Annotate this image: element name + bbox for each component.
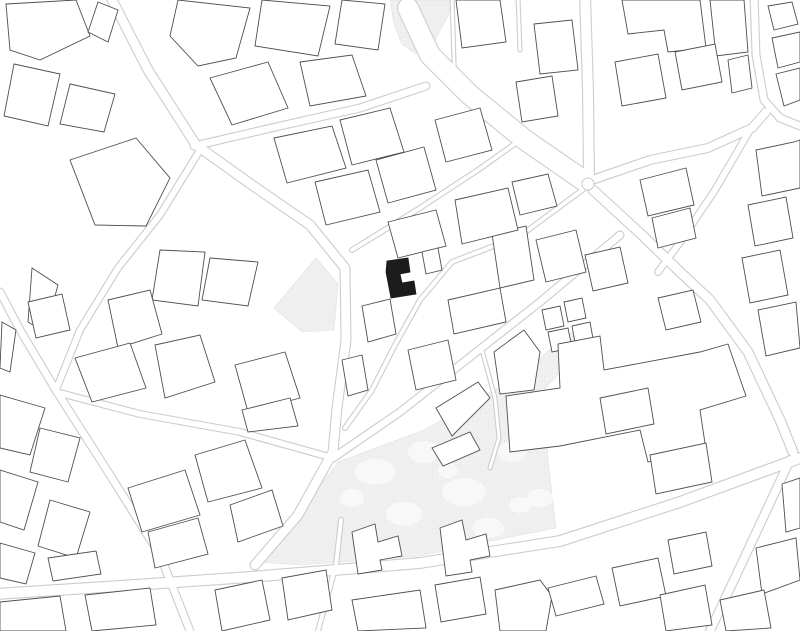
building-footprint [516,76,558,122]
street-north-arm [585,0,589,178]
building-footprint [495,580,552,631]
building-footprint [152,250,205,306]
map-canvas [0,0,800,631]
building-footprint [668,532,712,574]
building-footprint [85,588,156,631]
building-footprint [675,44,722,90]
building-footprint [28,294,70,338]
building-footprint [756,140,800,196]
building-footprint [542,306,564,330]
tree-blob [442,478,486,506]
building-footprint [255,0,330,56]
tree-blob [386,502,422,526]
building-footprint [422,248,442,274]
roundabout-island [582,178,594,190]
building-footprint [0,596,66,631]
tree-blob [438,462,458,478]
tree-blob [355,459,395,485]
tree-blob [509,497,531,513]
building-footprint [534,20,578,74]
building-footprint [585,247,628,291]
tree-blob [472,518,504,538]
building-footprint [435,577,486,622]
building-footprint [728,55,752,93]
building-footprint [456,0,506,48]
building-footprint [748,197,793,246]
building-footprint [758,302,800,356]
building-footprint [202,258,258,306]
site-plan-map [0,0,800,631]
building-footprint [564,298,586,322]
building-footprint [362,299,396,342]
building-footprint [335,0,385,50]
roundabout-layer [582,178,594,190]
tree-blob [340,489,364,507]
building-footprint [742,250,788,303]
building-footprint [615,54,666,106]
